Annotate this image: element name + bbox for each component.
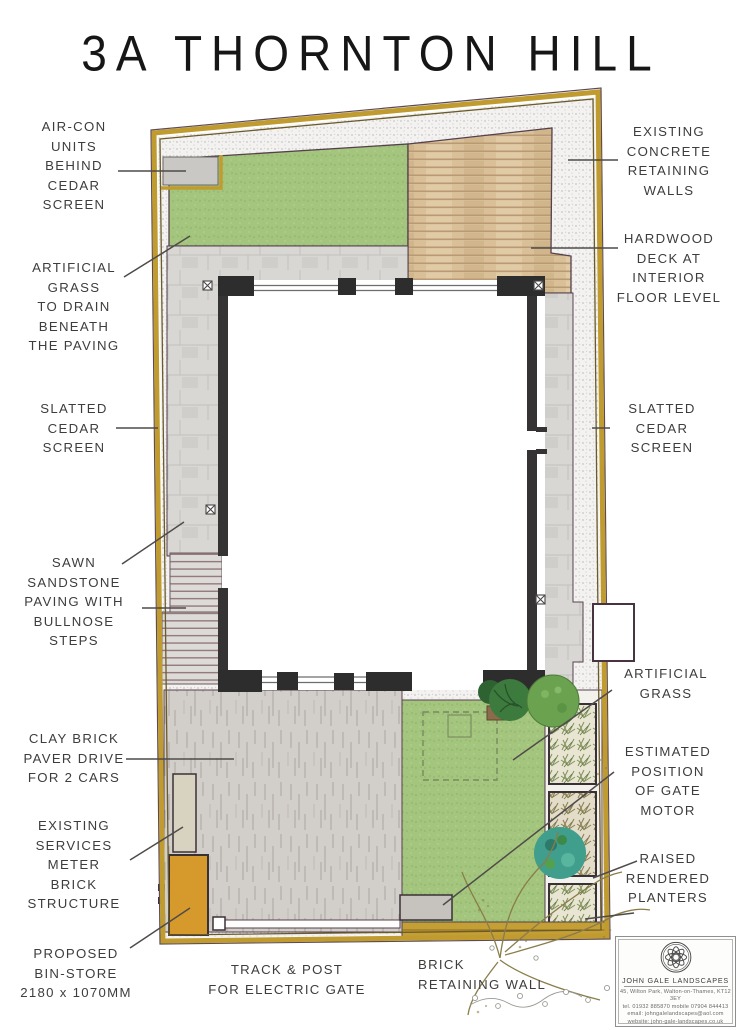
- logo-divider: [624, 986, 728, 987]
- label-raised-planters: RAISED RENDERED PLANTERS: [610, 849, 726, 908]
- celtic-knot-logo-icon: [658, 940, 694, 975]
- gate-post: [213, 917, 225, 930]
- label-artificial-grass-drain: ARTIFICIAL GRASS TO DRAIN BENEATH THE PA…: [10, 258, 138, 356]
- bullnose-steps: [162, 553, 222, 684]
- gate-motor-box: [400, 895, 452, 920]
- label-clay-brick-drive: CLAY BRICK PAVER DRIVE FOR 2 CARS: [12, 729, 136, 788]
- company-email: email: johngalelandscapes@aol.com: [627, 1011, 723, 1019]
- company-website: website: john-gale-landscapes.co.uk: [628, 1019, 724, 1027]
- fern-tree: [489, 679, 531, 721]
- label-track-post: TRACK & POST FOR ELECTRIC GATE: [198, 960, 376, 999]
- label-hardwood-deck: HARDWOOD DECK AT INTERIOR FLOOR LEVEL: [610, 229, 728, 307]
- artificial-grass-bottom-area: [402, 700, 545, 925]
- building-footprint: [203, 276, 547, 692]
- outbuilding-box: [593, 604, 634, 661]
- company-logo-box: JOHN GALE LANDSCAPES 45, Wilton Park, Wa…: [615, 936, 736, 1027]
- label-slatted-cedar-right: SLATTED CEDAR SCREEN: [606, 399, 718, 458]
- hardwood-deck-area: [408, 128, 571, 293]
- label-sawn-sandstone: SAWN SANDSTONE PAVING WITH BULLNOSE STEP…: [8, 553, 140, 651]
- label-existing-concrete: EXISTING CONCRETE RETAINING WALLS: [610, 122, 728, 200]
- label-aircon: AIR-CON UNITS BEHIND CEDAR SCREEN: [16, 117, 132, 215]
- label-slatted-cedar-left: SLATTED CEDAR SCREEN: [18, 399, 130, 458]
- label-brick-retaining: BRICK RETAINING WALL: [418, 955, 588, 994]
- label-artificial-grass: ARTIFICIAL GRASS: [610, 664, 722, 703]
- company-address: 45, Wilton Park, Walton-on-Thames, KT12 …: [616, 989, 735, 1004]
- label-bin-store: PROPOSED BIN-STORE 2180 x 1070MM: [6, 944, 146, 1003]
- company-name: JOHN GALE LANDSCAPES: [622, 976, 729, 985]
- plan-sheet: 3A THORNTON HILL: [0, 0, 742, 1030]
- company-phone: tel. 01932 885870 mobile 07904 844413: [623, 1004, 729, 1012]
- label-gate-motor: ESTIMATED POSITION OF GATE MOTOR: [612, 742, 724, 820]
- teal-shrub: [534, 827, 586, 879]
- services-meter-box: [173, 774, 196, 852]
- label-services-meter: EXISTING SERVICES METER BRICK STRUCTURE: [14, 816, 134, 914]
